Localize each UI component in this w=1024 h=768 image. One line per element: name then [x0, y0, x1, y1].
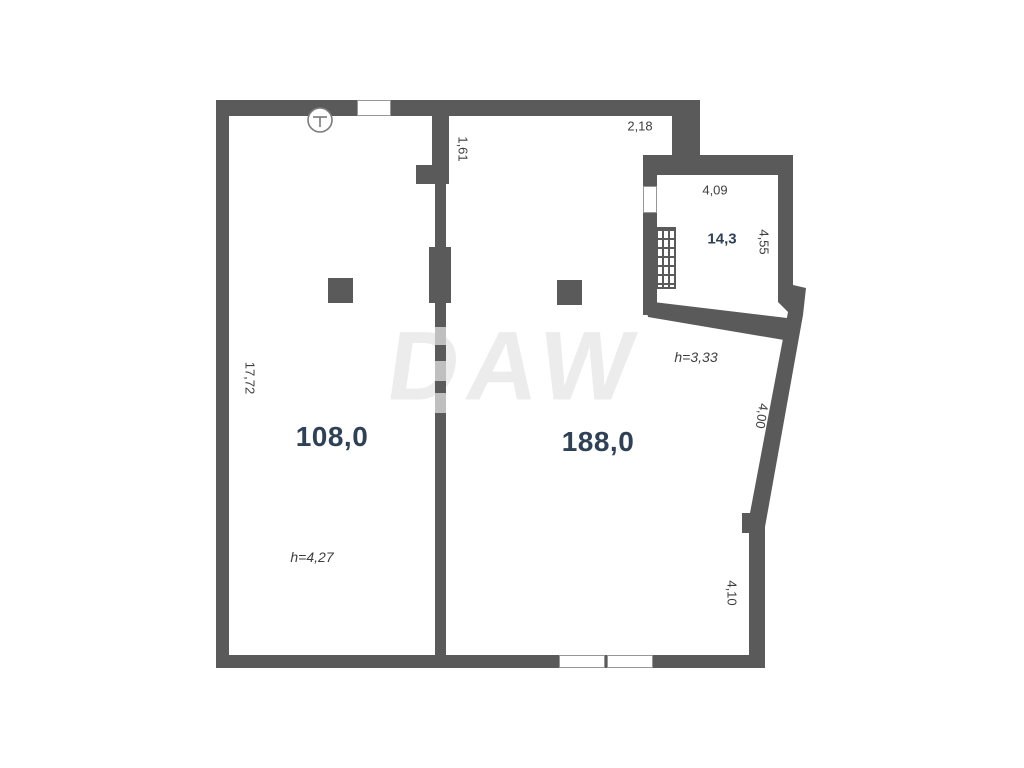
partition-wall-faded-segment [435, 361, 446, 381]
partition-wall-faded-segment [435, 327, 446, 345]
wall-room3-slanted-floor [645, 301, 787, 340]
partition-wall-thin-upper [435, 184, 446, 247]
column-room1 [328, 278, 353, 303]
dimension-label-right-wall-lower: 4,10 [725, 580, 740, 605]
dimension-label-room3-width: 4,09 [702, 183, 727, 198]
window-top [357, 100, 391, 116]
shaft-hatch [654, 227, 676, 289]
partition-wall-pier [429, 247, 451, 303]
room3-area-label: 14,3 [707, 231, 736, 248]
watermark-text: DAW [381, 310, 650, 423]
dimension-label-diagonal-wall: 4,00 [753, 402, 772, 429]
door-room3 [643, 186, 657, 213]
wall-room3-top [643, 155, 788, 175]
wall-left [216, 100, 229, 668]
window-bottom-left [559, 655, 605, 668]
wall-top [216, 100, 700, 116]
dimension-label-left-wall: 17,72 [243, 362, 258, 395]
partition-wall-faded-segment [435, 393, 446, 413]
partition-wall-lower [435, 303, 446, 655]
dimension-label-top-recess: 2,18 [627, 119, 652, 134]
wall-bottom [216, 655, 764, 668]
room1-ceiling-height-label: h=4,27 [290, 549, 333, 565]
partition-wall-ledge [416, 165, 449, 184]
window-bottom-right [607, 655, 653, 668]
dimension-label-room3-depth: 4,55 [757, 229, 772, 254]
room1-area-label: 108,0 [296, 421, 369, 453]
floor-plan: DAW 2,18 1,61 4,09 4,55 17,72 4,00 [0, 0, 1024, 768]
room2-ceiling-height-label: h=3,33 [674, 349, 717, 365]
dimension-label-partition-offset: 1,61 [456, 136, 471, 161]
partition-wall-upper [432, 116, 449, 165]
column-room2 [557, 280, 582, 305]
wall-right-diagonal [742, 155, 806, 668]
room2-area-label: 188,0 [562, 426, 635, 458]
